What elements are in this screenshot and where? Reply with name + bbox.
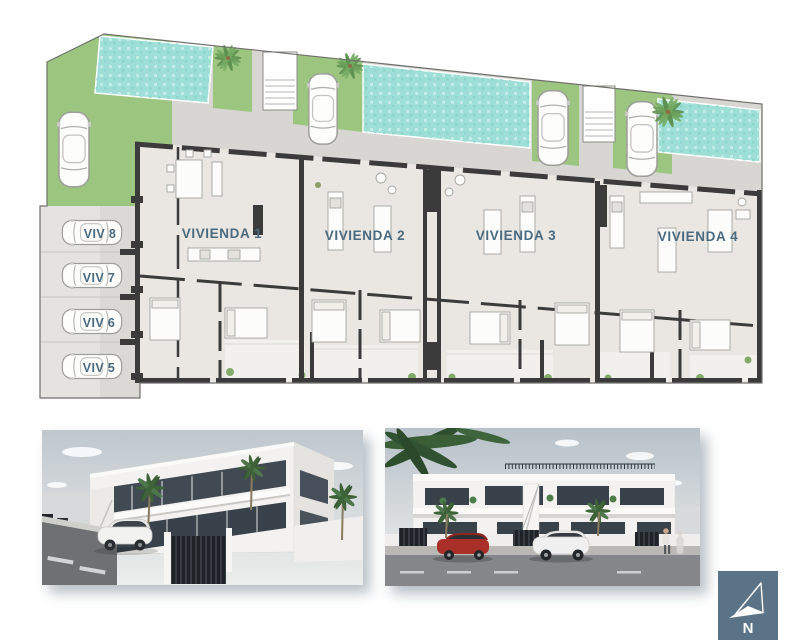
floor-plan: VIVIENDA 1 VIVIENDA 2 VIVIENDA 3 VIVIEND… — [0, 0, 800, 422]
parking-label-viv-5: VIV 5 — [83, 361, 116, 375]
north-compass: N — [718, 571, 778, 640]
brochure-page: VIVIENDA 1 VIVIENDA 2 VIVIENDA 3 VIVIEND… — [0, 0, 800, 640]
compass-north-label: N — [743, 620, 754, 637]
parking-label-viv-7: VIV 7 — [83, 271, 116, 285]
parking-label-viv-6: VIV 6 — [83, 316, 116, 330]
unit-label-vivienda-2: VIVIENDA 2 — [325, 228, 406, 243]
unit-label-vivienda-3: VIVIENDA 3 — [476, 228, 557, 243]
photo-exterior-corner — [42, 430, 363, 585]
unit-label-vivienda-1: VIVIENDA 1 — [182, 226, 263, 241]
photo-exterior-front — [385, 428, 700, 586]
parking-label-viv-8: VIV 8 — [84, 227, 117, 241]
unit-label-vivienda-4: VIVIENDA 4 — [658, 229, 739, 244]
gate — [170, 536, 226, 584]
